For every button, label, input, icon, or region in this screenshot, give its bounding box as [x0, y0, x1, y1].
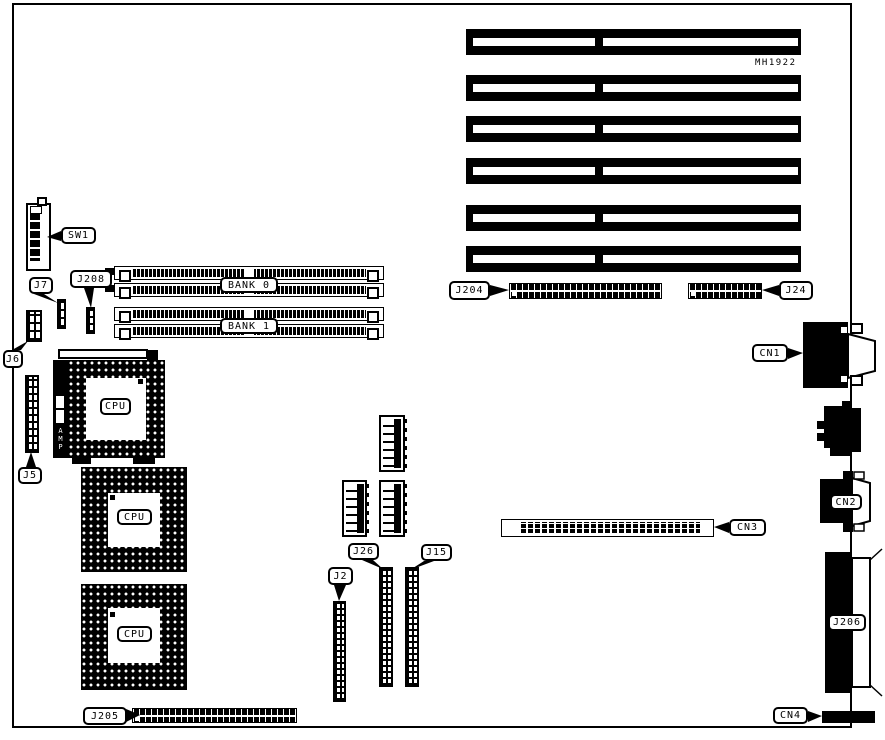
simm-clip [367, 328, 379, 340]
label-cpu-3: CPU [117, 626, 152, 642]
power-connector-2 [342, 480, 367, 537]
label-j26: J26 [348, 543, 379, 560]
header-j26 [379, 567, 393, 687]
power-bar [396, 484, 401, 533]
header-j15 [405, 567, 419, 687]
simm-clip [367, 287, 379, 299]
part-number: MH1922 [755, 58, 797, 68]
pin1-marker [110, 612, 115, 617]
power-connector-3 [379, 480, 405, 537]
label-cn3: CN3 [729, 519, 766, 536]
socket-foot [72, 458, 91, 464]
slot-slit [603, 84, 798, 92]
cn2-tab [854, 524, 864, 531]
connector-cn3 [501, 519, 714, 537]
simm-contacts [132, 269, 366, 277]
dip-switch-notch [37, 197, 47, 206]
simm-clip [119, 287, 131, 299]
cn1-tab [851, 324, 862, 333]
motherboard-diagram: MH1922 AMP [0, 0, 885, 740]
expansion-slot-4 [466, 158, 801, 184]
label-cpu-1: CPU [100, 398, 131, 415]
power-pins [365, 484, 369, 533]
header-j6 [26, 310, 42, 342]
label-j5: J5 [18, 467, 42, 484]
amp-lever-slot [56, 396, 64, 408]
label-j204: J204 [449, 281, 490, 300]
j206-diagonal [870, 549, 882, 560]
pin1-marker [691, 292, 695, 296]
dip-cells [30, 213, 40, 261]
simm-clip [367, 270, 379, 282]
socket-foot [133, 458, 155, 464]
label-cn1: CN1 [752, 344, 788, 362]
header-j208 [86, 307, 95, 334]
simm-clip [119, 328, 131, 340]
simm-clip [367, 311, 379, 323]
label-cn4: CN4 [773, 707, 808, 724]
slot-slit [473, 125, 595, 133]
connector-cn4-body [822, 711, 875, 723]
power-cells [383, 419, 396, 468]
slot-slit [603, 125, 798, 133]
expansion-slot-6 [466, 246, 801, 272]
label-j7: J7 [29, 277, 53, 294]
label-cpu-2: CPU [117, 509, 152, 525]
cpu1-amp-lever: AMP [53, 360, 68, 458]
connector-cn1-body [803, 322, 848, 388]
label-j206: J206 [828, 614, 866, 631]
cn1-dsub-outline [848, 334, 875, 378]
power-pins [403, 419, 407, 468]
slot-slit [603, 38, 798, 46]
expansion-slot-5 [466, 205, 801, 231]
cpu1-retention-bar [58, 349, 148, 359]
expansion-slot-2 [466, 75, 801, 101]
header-j24 [688, 283, 762, 299]
power-bar [396, 419, 401, 468]
dip-switch-sw1 [26, 203, 51, 271]
header-j205 [132, 708, 297, 723]
header-j5 [25, 375, 39, 453]
header-j7 [57, 299, 66, 329]
power-cells [346, 484, 359, 533]
power-connector-1 [379, 415, 405, 472]
label-j15: J15 [421, 544, 452, 561]
header-j2 [333, 601, 346, 702]
cn1-tab [851, 376, 862, 385]
power-pins [403, 484, 407, 533]
header-j204 [509, 283, 662, 299]
label-bank0: BANK 0 [220, 277, 278, 293]
slot-slit [473, 167, 595, 175]
simm-clip [119, 311, 131, 323]
slot-slit [603, 167, 798, 175]
pin1-marker [110, 495, 115, 500]
expansion-slot-3 [466, 116, 801, 142]
label-j208: J208 [70, 270, 112, 288]
power-bar [359, 484, 364, 533]
label-j2: J2 [328, 567, 353, 585]
pin1-marker [138, 379, 143, 384]
simm-clip [119, 270, 131, 282]
slot-slit [473, 84, 595, 92]
pin1-marker [135, 717, 139, 721]
label-bank1: BANK 1 [220, 318, 278, 334]
power-cells [383, 484, 396, 533]
label-j6: J6 [3, 350, 23, 368]
cn2-tab [854, 472, 864, 479]
slot-slit [473, 214, 595, 222]
cn3-pins [519, 522, 700, 534]
amp-brand-text: AMP [55, 422, 66, 456]
label-cn2: CN2 [830, 494, 862, 510]
label-sw1: SW1 [61, 227, 96, 244]
expansion-slot-1 [466, 29, 801, 55]
slot-slit [473, 255, 595, 263]
slot-slit [473, 38, 595, 46]
label-j205: J205 [83, 707, 127, 725]
pin1-marker [512, 292, 516, 296]
j206-diagonal [870, 685, 882, 696]
slot-slit [603, 255, 798, 263]
slot-slit [603, 214, 798, 222]
label-j24: J24 [779, 281, 813, 300]
simm-contacts [132, 310, 366, 318]
